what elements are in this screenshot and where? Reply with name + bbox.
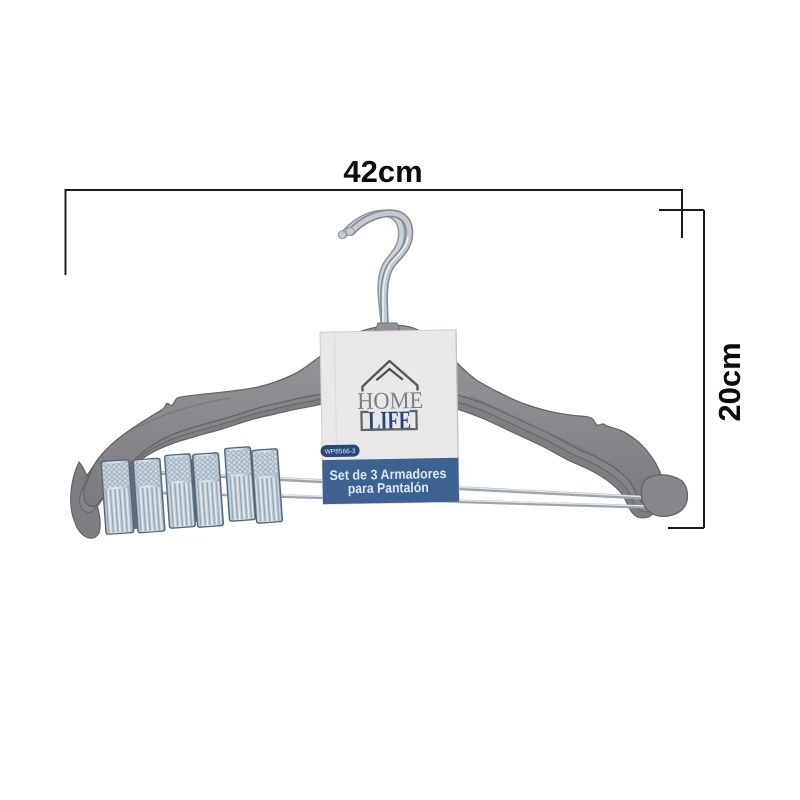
svg-text:42cm: 42cm (343, 154, 422, 189)
svg-text:20cm: 20cm (712, 342, 747, 421)
svg-text:para Pantalón: para Pantalón (348, 480, 429, 496)
svg-text:WP8566-3: WP8566-3 (325, 448, 356, 456)
svg-text:LIFE: LIFE (368, 405, 412, 436)
